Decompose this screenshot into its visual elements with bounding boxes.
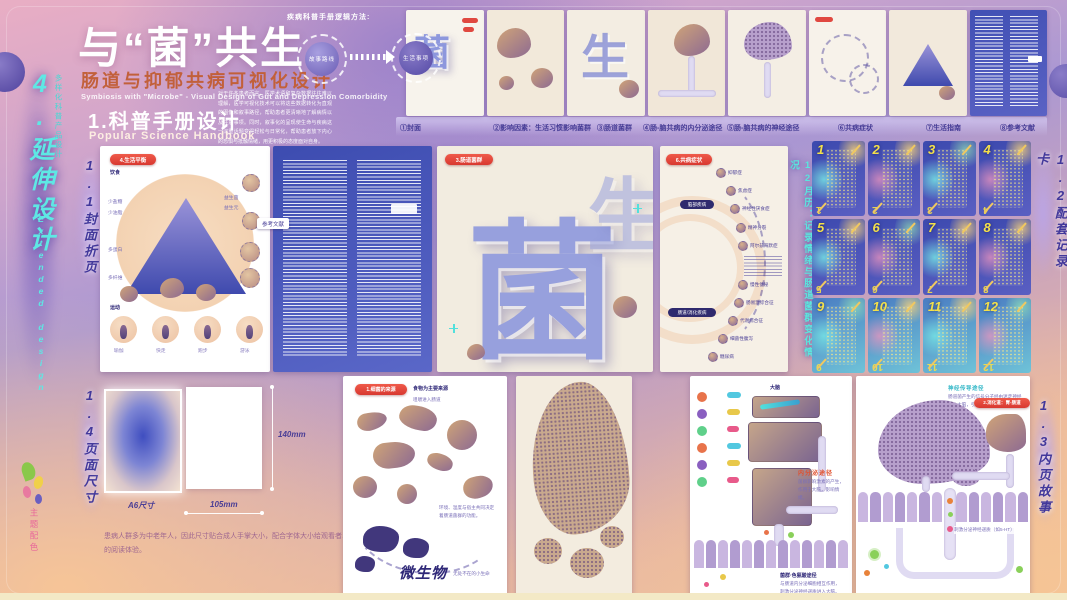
brain-tag: 大脑 [770,384,780,391]
dotted-sphere-icon [600,526,624,548]
microbe-node-icon [708,352,718,362]
dot-grid [882,306,912,365]
disease-label: 慢性便秘 [750,282,768,288]
pipe-icon [1006,454,1014,488]
caption-references: ⑧参考文献 [1000,123,1035,133]
dark-microbe-icon [403,538,429,558]
a6-gradient-swatch [104,389,182,493]
height-dimension-label: 140mm [278,430,306,439]
microbe-note: 环境、温度与宿主共同决定着肠道菌群的功能。 [439,504,497,520]
record-card: 44 [979,141,1032,216]
spread-page-neural [728,10,806,116]
flow-node-life: 生活事项 [391,33,441,83]
disease-label: 代谢综合征 [740,318,763,324]
pipe-icon [786,506,838,514]
food-blob-icon [196,284,216,301]
yoga-icon [110,316,137,343]
dot-grid [882,228,912,287]
gut-disease-category: 肠道/消化疾病 [668,308,716,317]
disease-label: 肠易激综合征 [746,300,774,306]
dot-grid [937,149,967,208]
pipe-icon [764,62,771,98]
disease-label: 精神分裂 [748,225,766,231]
red-pill-icon [462,18,478,23]
dot-grid [826,228,856,287]
handbook-spread: 菌 生 [406,10,1047,116]
microbe-node-icon [716,168,726,178]
walk-icon [152,316,179,343]
dot-grid [937,306,967,365]
spread-page-symptoms [809,10,887,116]
microbe-blob-icon [613,296,637,318]
stomach-blob-icon [674,24,710,56]
life-balance-badge: 4.生活平衡 [110,154,156,165]
pyramid-label: 少油脂 [108,209,122,216]
microbe-icon [240,242,260,262]
record-card: 11 [812,141,865,216]
villi-note: 刺激分泌神经递质（如5-HT） [954,526,1024,534]
height-dimension-line [272,387,273,489]
diet-label: 饮食 [110,169,120,176]
caption-symptoms: ⑥共病症状 [838,123,873,133]
width-dimension-label: 105mm [210,500,238,509]
caption-neural: ⑤肠-脑共病的神经途径 [727,123,799,133]
microbe-blob-icon [619,80,639,98]
record-card: 99 [812,298,865,373]
prebiotic-label: 益生元 [224,204,238,211]
yoga-label: 瑜伽 [114,347,124,354]
section-label-inner-story: 1.3内页故事 [1034,398,1053,518]
a6-label: A6尺寸 [128,500,154,511]
record-card: 77 [923,219,976,294]
pyramid-label: 多蛋白 [108,246,122,253]
red-pill-icon [815,17,833,22]
neural-path-heading: 神经传导途径 [948,384,984,392]
dot-grid [993,228,1023,287]
flow-node-story: 故事路线 [297,34,347,84]
microbe-node-icon [730,204,740,214]
dark-microbe-icon [355,556,375,572]
disease-label: 阿尔兹海默症 [750,243,778,249]
dot-grid [826,306,856,365]
calendar-note: 12月历：记录情绪与肠道菌群变化情况 [786,160,814,368]
dotted-art-page [516,376,632,596]
caption-gut-flora: ③肠道菌群 [597,123,632,133]
stomach-gut-badge: 2.消化道：胃-肠道 [974,398,1030,408]
intestine-villi-icon [694,540,848,568]
section-label-cover-fold: 1.1封面折页 [80,158,99,283]
walk-label: 快走 [156,347,166,354]
microbe-title-sub: 无处不在的小生命 [453,570,490,578]
microbe-source-line1: 食物为主要来源 [413,385,448,392]
pipe-icon [922,476,930,492]
record-card-grid: 11 22 33 44 55 66 77 88 99 1010 1111 121… [812,141,1031,373]
pyramid-label: 少盐糖 [108,198,122,205]
reference-highlight-box [391,204,417,214]
gut-flora-badge: 3.肠道菌群 [445,154,493,165]
food-chunk-icon [447,420,477,450]
flow-node-story-label: 故事路线 [305,42,339,76]
brain-disease-category: 脑部疾病 [680,200,714,209]
sport-label: 运动 [110,304,120,311]
record-card: 1010 [868,298,921,373]
bottom-cream-bar [0,593,1067,600]
record-card: 22 [868,141,921,216]
probiotic-icon [242,174,260,192]
dashed-arrow-icon [350,54,386,60]
flow-node-life-label: 生活事项 [399,41,433,75]
section-label-page-size: 1.4页面尺寸 [80,388,99,513]
microbe-icon [240,268,260,288]
caption-endocrine: ④肠-脑共病的内分泌途径 [643,123,722,133]
dark-microbe-icon [363,526,399,552]
pipe-icon [952,472,1010,480]
bacteria-icon-grid [697,392,743,487]
page-size-note: 患病人群多为中老年人，因此尺寸贴合成人手掌大小，配合字体大小给观看者以舒适的阅读… [104,530,366,557]
microbe-node-icon [718,334,728,344]
page-size-rectangle [186,387,262,489]
disease-node: 肠易激综合征 [734,298,774,308]
disease-label: 焦虑症 [738,188,752,194]
endocrine-path-label: 内分泌途径 [798,468,833,477]
disease-node: 慢性便秘 [738,280,768,290]
microbe-blob-icon [939,86,955,100]
reference-text-lines [283,160,347,358]
record-card: 1212 [979,298,1032,373]
disease-label: 神经性厌食症 [742,206,770,212]
section-label-record-cards: 1.2配套记录卡 [1032,152,1067,282]
symptoms-badge: 6.共病症状 [666,154,712,165]
record-card: 66 [868,219,921,294]
tryptophan-tag: 菌群·色氨酸途径 [780,572,817,579]
purple-semicircle-icon [1049,64,1067,98]
record-card: 33 [923,141,976,216]
pink-petal-icon [22,485,32,498]
references-page [273,146,432,372]
intro-paragraph: 对于许多患者而言，医学术语和复杂数据往往难以理解，医学可视化技术可以将这些数据转… [218,90,332,147]
disease-node: 糖尿病 [708,352,734,362]
symptoms-page: 6.共病症状 脑部疾病 肠道/消化疾病 抑郁症 焦虑症 神经性厌食症 精神分裂 … [660,146,788,372]
art-glyph: 生 [581,18,629,88]
probiotic-label: 益生菌 [224,194,238,201]
record-card: 88 [979,219,1032,294]
reference-tag: 参考文献 [257,218,289,229]
caption-cover: ①封面 [400,123,421,133]
disease-node: 精神分裂 [736,223,766,233]
glyph-art-page: 菌 生 3.肠道菌群 [437,146,653,372]
reference-text-lines [1010,16,1038,108]
microbe-node-icon [736,223,746,233]
dotted-sphere-icon [534,538,562,564]
u-pipe-icon [896,528,1014,579]
dot-grid [937,228,967,287]
stomach-blob-icon [497,28,531,58]
disease-label: 抑郁症 [728,170,742,176]
dot-grid [993,149,1023,208]
spread-page-endocrine [648,10,726,116]
microbe-node-icon [728,316,738,326]
red-pill-icon [463,27,474,32]
intestine-villi-icon [858,492,1028,522]
poster-board: 4.延伸设计 多样化科普产品设计 Extended design 主题配色 与“… [0,0,1067,600]
reference-text-lines [975,16,1003,108]
disease-node: 神经性厌食症 [730,204,770,214]
spread-page-references [970,10,1048,116]
annotation-lines [744,256,782,276]
giant-glyph-secondary: 生 [587,152,653,268]
pyramid-icon [903,44,953,86]
pipe-icon [658,90,716,97]
dotted-organ-icon [527,379,632,537]
spread-page-gut-flora: 生 [567,10,645,116]
caption-guide: ⑦生活指南 [926,123,961,133]
extension-section-note: 多样化科普产品设计 [53,74,64,160]
disease-node: 代谢综合征 [728,316,763,326]
dot-grid [993,306,1023,365]
neural-page: 神经传导途径 肠道菌产生的信号分子经由迷走神经进入大脑，引起情绪与压力反应。 2… [856,376,1030,596]
microbe-source-line2: 咀嚼进入肠道 [413,396,441,404]
microbe-source-badge: 1.细菌的来源 [355,384,407,395]
microbe-node-icon [734,298,744,308]
disease-label: 糖尿病 [720,354,734,360]
disease-node: 抑郁症 [716,168,742,178]
palette-label: 主题配色 [28,508,40,554]
microbe-node-icon [738,241,748,251]
spread-page-guide [889,10,967,116]
food-chunk-icon [355,409,388,434]
flow-method-label: 疾病科普手册逻辑方法: [287,12,370,22]
disease-label: 细菌性腹泻 [730,336,753,342]
run-icon [194,316,221,343]
disease-node: 焦虑症 [726,186,752,196]
microbe-page: 1.细菌的来源 食物为主要来源 咀嚼进入肠道 环境、温度与宿主共同决定着肠道菌群… [343,376,507,596]
record-card: 55 [812,219,865,294]
dotted-sphere-icon [570,548,604,578]
cover-fold-page: 4.生活平衡 饮食 少盐糖 少油脂 多蛋白 多纤维 益生菌 益生元 运动 瑜伽 … [100,146,270,372]
food-chunk-icon [398,403,439,432]
dot-grid [826,149,856,208]
spread-page-factors [487,10,565,116]
microbe-title: 微生物 [399,562,447,583]
microbe-node-icon [738,280,748,290]
disease-node: 细菌性腹泻 [718,334,753,344]
brain-blob-icon [744,22,792,60]
dot-grid [882,149,912,208]
caption-factors: ②影响因素：生活习惯影响菌群 [493,123,591,133]
food-blob-icon [120,286,138,302]
machine-box-icon [748,422,822,462]
plus-mark-icon [449,324,458,333]
swim-icon [236,316,263,343]
microbe-blob-icon [531,68,553,88]
run-label: 跑步 [198,347,208,354]
stomach-blob-icon [986,414,1026,452]
reference-highlight-tag [1028,56,1042,62]
extension-section-english: Extended design [36,214,46,394]
plus-mark-icon [633,204,642,213]
dashed-circle-icon [849,64,879,94]
width-dimension-line [186,513,262,514]
disease-node: 阿尔兹海默症 [738,241,778,251]
endocrine-page: 大脑 内分泌途径 菌群影响激素的产生，作用于大脑，影响情绪。 菌群·色氨酸途径 … [690,376,852,596]
purple-petal-icon [35,494,42,504]
pyramid-label: 多纤维 [108,274,122,281]
record-card: 1111 [923,298,976,373]
microbe-node-icon [726,186,736,196]
swim-label: 游泳 [240,347,250,354]
endocrine-path-note: 菌群影响激素的产生，作用于大脑，影响情绪。 [798,478,846,501]
microbe-blob-icon [499,76,514,90]
reference-text-lines [357,160,421,358]
